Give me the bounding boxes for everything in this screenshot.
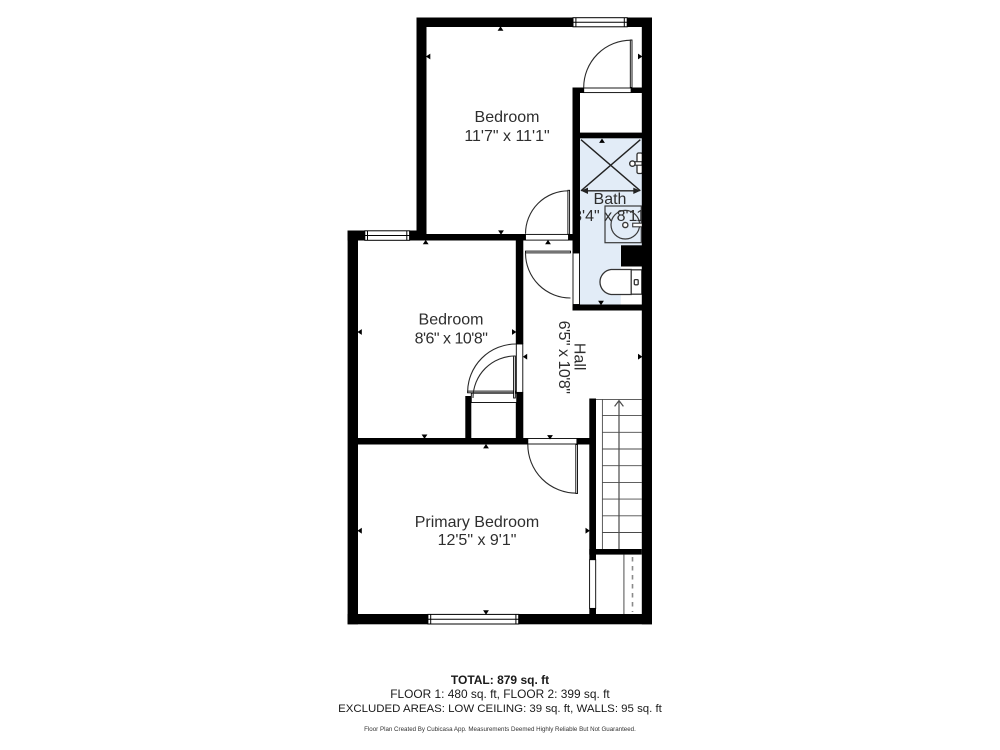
svg-text:Bath: Bath [594, 191, 627, 208]
svg-text:FLOOR 1: 480 sq. ft, FLOOR 2:: FLOOR 1: 480 sq. ft, FLOOR 2: 399 sq. ft [390, 687, 610, 701]
svg-text:8'6" x 10'8": 8'6" x 10'8" [415, 331, 488, 348]
svg-text:Primary Bedroom: Primary Bedroom [415, 514, 539, 531]
svg-text:Floor Plan Created By Cubicasa: Floor Plan Created By Cubicasa App. Meas… [364, 726, 636, 733]
svg-text:Bedroom: Bedroom [419, 312, 484, 329]
svg-text:TOTAL: 879 sq. ft: TOTAL: 879 sq. ft [451, 673, 549, 687]
svg-text:6'5" x 10'8": 6'5" x 10'8" [555, 321, 572, 394]
svg-text:11'7" x 11'1": 11'7" x 11'1" [464, 128, 549, 145]
svg-text:Bedroom: Bedroom [475, 109, 540, 126]
svg-text:Hall: Hall [571, 343, 588, 371]
svg-text:12'5" x 9'1": 12'5" x 9'1" [438, 532, 517, 549]
svg-text:EXCLUDED AREAS: LOW CEILING: 3: EXCLUDED AREAS: LOW CEILING: 39 sq. ft, … [338, 703, 663, 715]
